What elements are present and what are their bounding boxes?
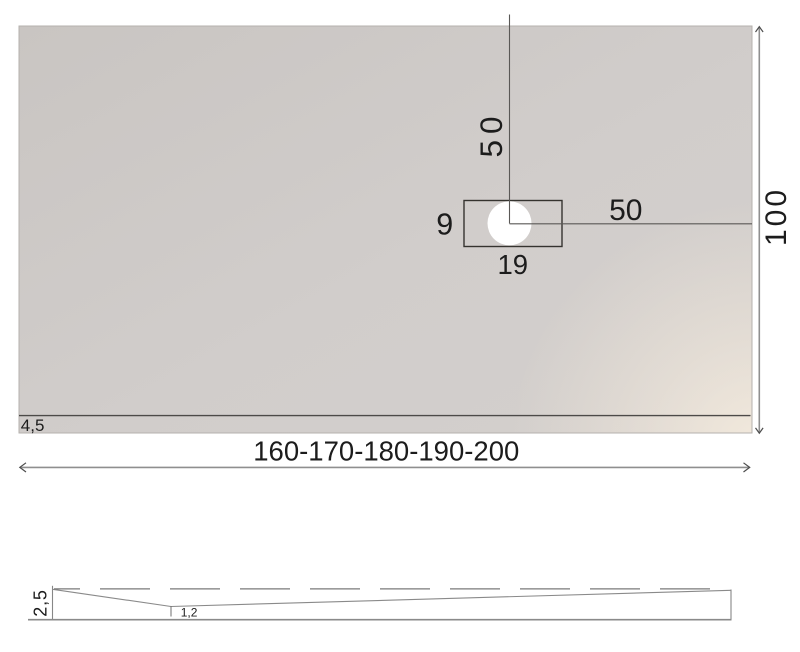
svg-text:19: 19: [498, 249, 529, 280]
svg-text:9: 9: [436, 207, 453, 241]
svg-text:100: 100: [760, 187, 793, 246]
svg-text:50: 50: [473, 110, 509, 157]
svg-text:4,5: 4,5: [21, 416, 45, 435]
svg-text:2,5: 2,5: [31, 589, 51, 616]
svg-text:1,2: 1,2: [181, 606, 198, 620]
svg-text:50: 50: [609, 194, 642, 227]
svg-text:160-170-180-190-200: 160-170-180-190-200: [253, 436, 519, 467]
